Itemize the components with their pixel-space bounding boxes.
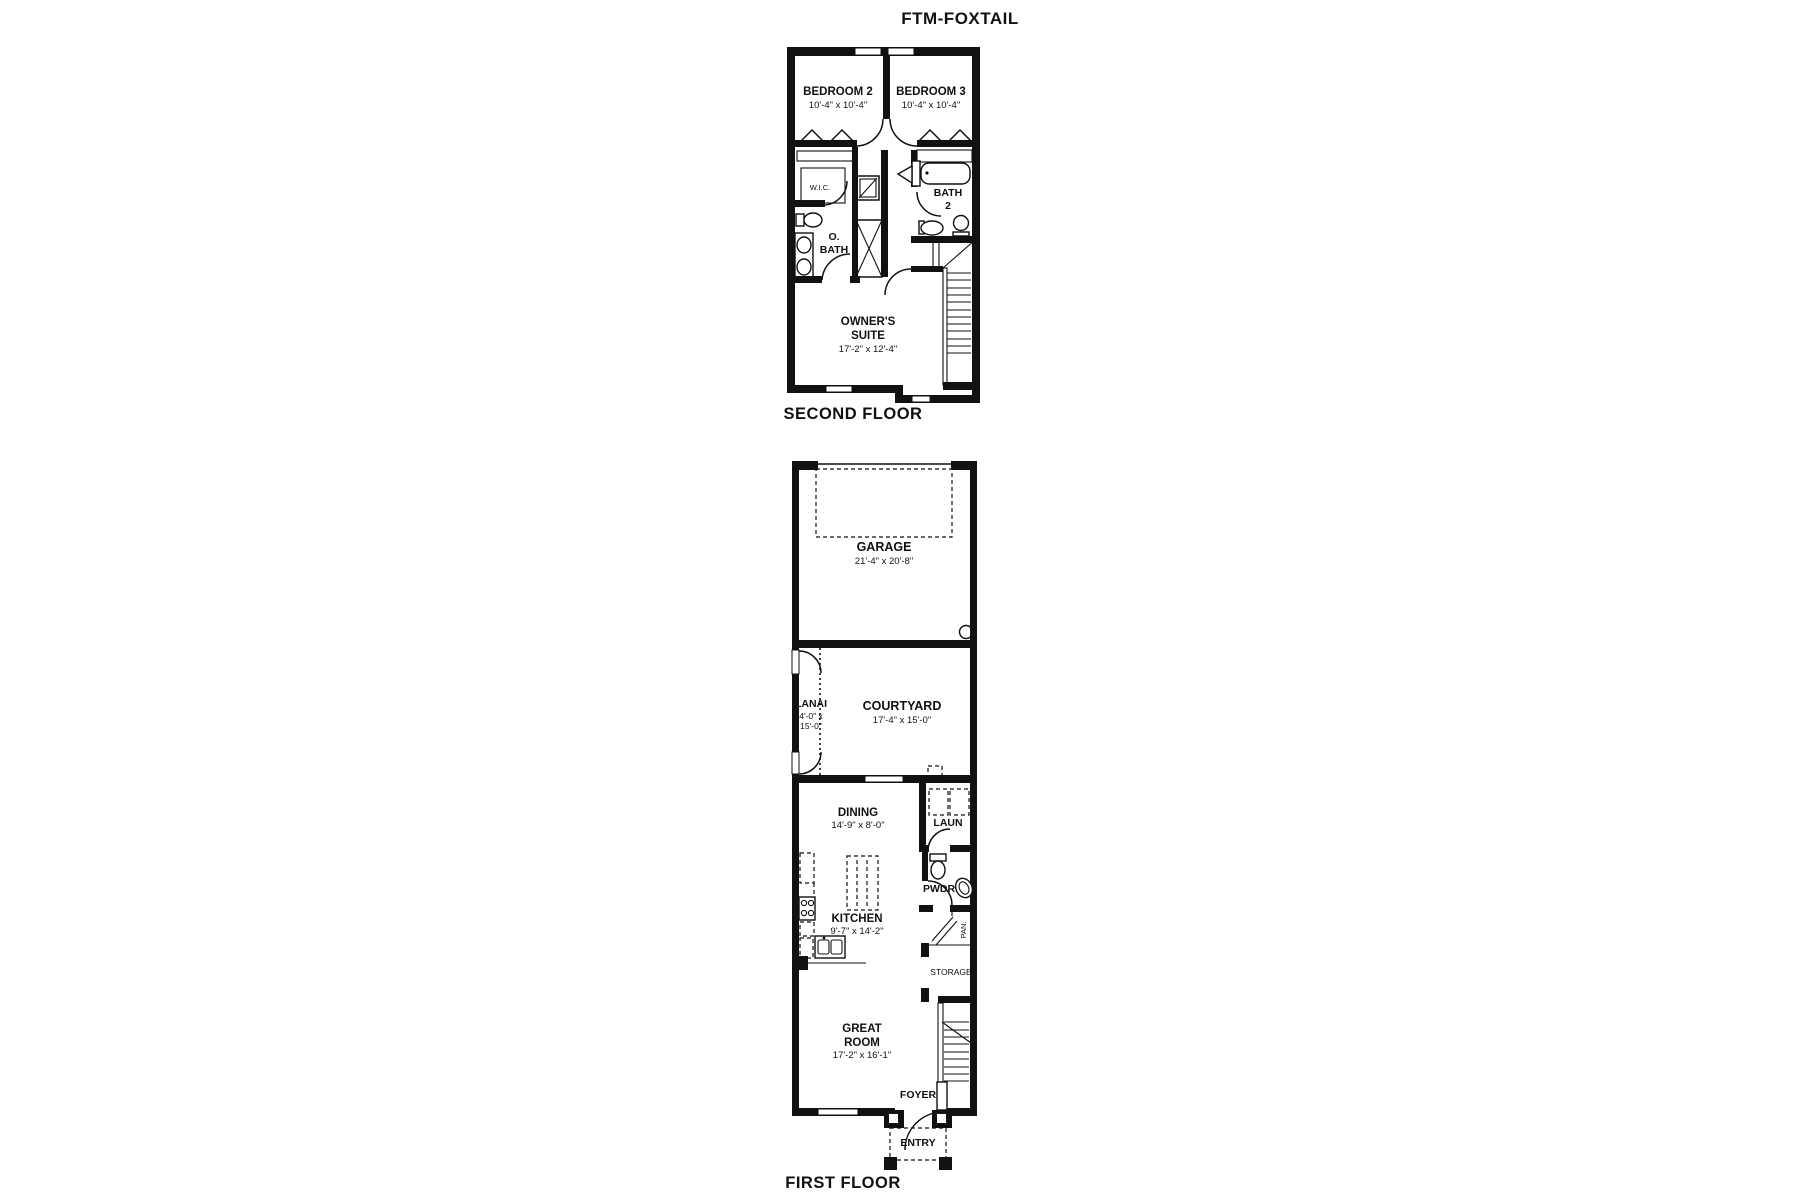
courtyard-label: COURTYARD bbox=[863, 699, 942, 713]
owners-suite-dims: 17'-2" x 12'-4" bbox=[839, 344, 897, 355]
door-arc bbox=[799, 752, 821, 774]
kitchen-dims: 9'-7" x 14'-2" bbox=[830, 926, 883, 937]
laundry-label: LAUN bbox=[933, 817, 962, 829]
door-leaf bbox=[912, 161, 920, 186]
lanai-dims: 4'-0" x bbox=[799, 711, 823, 721]
garage-apron-dashed bbox=[816, 469, 952, 537]
door-swing bbox=[898, 166, 912, 183]
bedroom2-label: BEDROOM 2 bbox=[803, 86, 873, 98]
dining-label: DINING bbox=[838, 807, 878, 819]
kitchen-island bbox=[847, 856, 878, 910]
window bbox=[855, 48, 881, 55]
great-room-dims: 17'-2" x 16'-1" bbox=[833, 1050, 891, 1061]
first-floor-stairs bbox=[938, 1003, 971, 1085]
door-arc bbox=[890, 119, 917, 146]
courtyard-dashed-box bbox=[928, 766, 942, 776]
entry-porch: ENTRY bbox=[884, 1110, 952, 1170]
range-fixture bbox=[799, 897, 815, 920]
bath2-label: 2 bbox=[945, 200, 951, 212]
toilet-fixture bbox=[921, 221, 943, 235]
lanai-label: LANAI bbox=[795, 698, 827, 710]
floorplan-page: FTM-FOXTAIL bbox=[0, 0, 1800, 1200]
toilet-fixture bbox=[930, 854, 946, 861]
pantry-door bbox=[932, 917, 957, 945]
plan-title: FTM-FOXTAIL bbox=[901, 9, 1019, 28]
owners-bath-fixtures bbox=[795, 213, 822, 279]
owners-bath-label: O. bbox=[828, 231, 839, 243]
second-floor-plan: W.I.C. O. BATH bbox=[787, 47, 980, 403]
storage-label: STORAGE bbox=[930, 967, 972, 977]
door-arc bbox=[799, 651, 821, 673]
door-arc bbox=[885, 269, 911, 295]
sliding-door bbox=[865, 776, 903, 782]
kitchen-counter bbox=[800, 938, 813, 958]
kitchen-sink-fixture bbox=[815, 936, 845, 958]
bedroom2-dims: 10'-4" x 10'-4" bbox=[809, 100, 867, 111]
bedroom3-label: BEDROOM 3 bbox=[896, 86, 966, 98]
lanai-dims: 15'-0" bbox=[800, 721, 822, 731]
pantry-label: PAN. bbox=[959, 922, 968, 939]
washer-fixture bbox=[929, 789, 948, 815]
sink-base bbox=[953, 232, 969, 236]
dining-dims: 14'-9" x 8'-0" bbox=[831, 820, 884, 831]
door-arc bbox=[856, 119, 883, 146]
window bbox=[826, 386, 852, 392]
sink-fixture bbox=[797, 259, 811, 275]
dryer-fixture bbox=[950, 789, 969, 815]
bedroom3-dims: 10'-4" x 10'-4" bbox=[902, 100, 960, 111]
kitchen-label: KITCHEN bbox=[831, 913, 882, 925]
window bbox=[818, 1109, 858, 1115]
sink-fixture bbox=[797, 237, 811, 253]
owners-suite-label: OWNER'S bbox=[841, 316, 896, 328]
front-door-leaf bbox=[937, 1082, 947, 1110]
window bbox=[888, 48, 914, 55]
powder-label: PWDR bbox=[923, 883, 955, 895]
door-arc bbox=[928, 829, 950, 851]
kitchen-counter bbox=[800, 853, 814, 883]
toilet-fixture bbox=[931, 861, 945, 879]
second-floor-label: SECOND FLOOR bbox=[784, 405, 923, 423]
first-floor-label: FIRST FLOOR bbox=[785, 1174, 901, 1192]
entry-label: ENTRY bbox=[900, 1137, 935, 1149]
owners-suite-label: SUITE bbox=[851, 330, 885, 342]
first-floor-plan: GARAGE 21'-4" x 20'-8" LANAI 4'-0" x 15'… bbox=[792, 461, 977, 1170]
sink-fixture bbox=[954, 216, 969, 231]
garage-dims: 21'-4" x 20'-8" bbox=[855, 556, 913, 567]
courtyard-dims: 17'-4" x 15'-0" bbox=[873, 715, 931, 726]
great-room-label: GREAT bbox=[842, 1023, 881, 1035]
foyer-label: FOYER bbox=[900, 1089, 937, 1101]
toilet-fixture bbox=[804, 213, 822, 227]
toilet-fixture bbox=[796, 214, 804, 226]
window bbox=[912, 396, 930, 402]
door-arc bbox=[822, 254, 850, 280]
great-room-label: ROOM bbox=[844, 1037, 880, 1049]
tub-faucet bbox=[925, 171, 928, 174]
kitchen-counter bbox=[800, 922, 814, 936]
bath2-label: BATH bbox=[934, 187, 962, 199]
garage-label: GARAGE bbox=[857, 540, 912, 554]
shower-fixture bbox=[857, 176, 879, 200]
wic-label: W.I.C. bbox=[810, 183, 830, 192]
floorplan-drawing: FTM-FOXTAIL bbox=[0, 0, 1800, 1200]
linen-closet bbox=[856, 220, 882, 277]
